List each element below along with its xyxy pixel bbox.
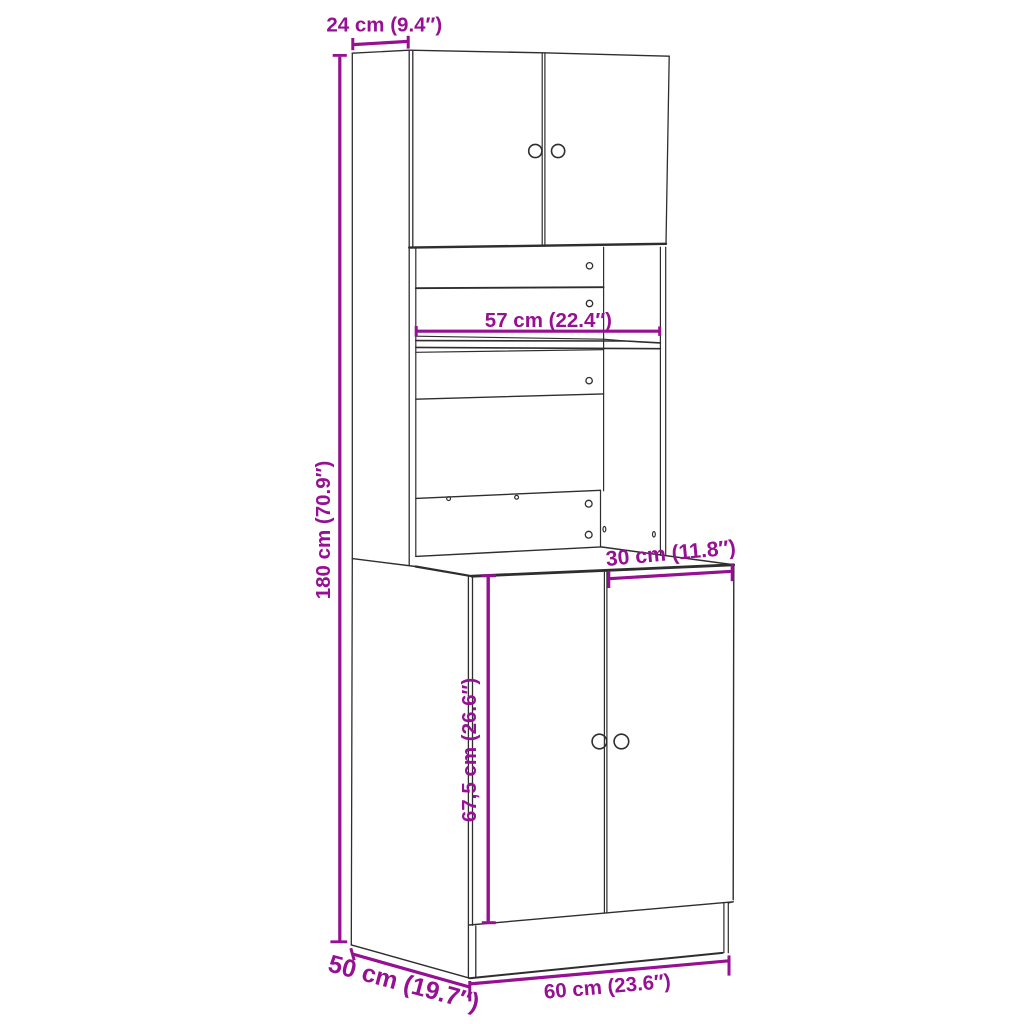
svg-text:57 cm (22.4″): 57 cm (22.4″) xyxy=(485,309,612,332)
svg-text:67,5 cm (26.6″): 67,5 cm (26.6″) xyxy=(458,678,481,822)
svg-text:180 cm (70.9″): 180 cm (70.9″) xyxy=(312,461,335,600)
svg-text:24 cm (9.4″): 24 cm (9.4″) xyxy=(326,14,442,37)
